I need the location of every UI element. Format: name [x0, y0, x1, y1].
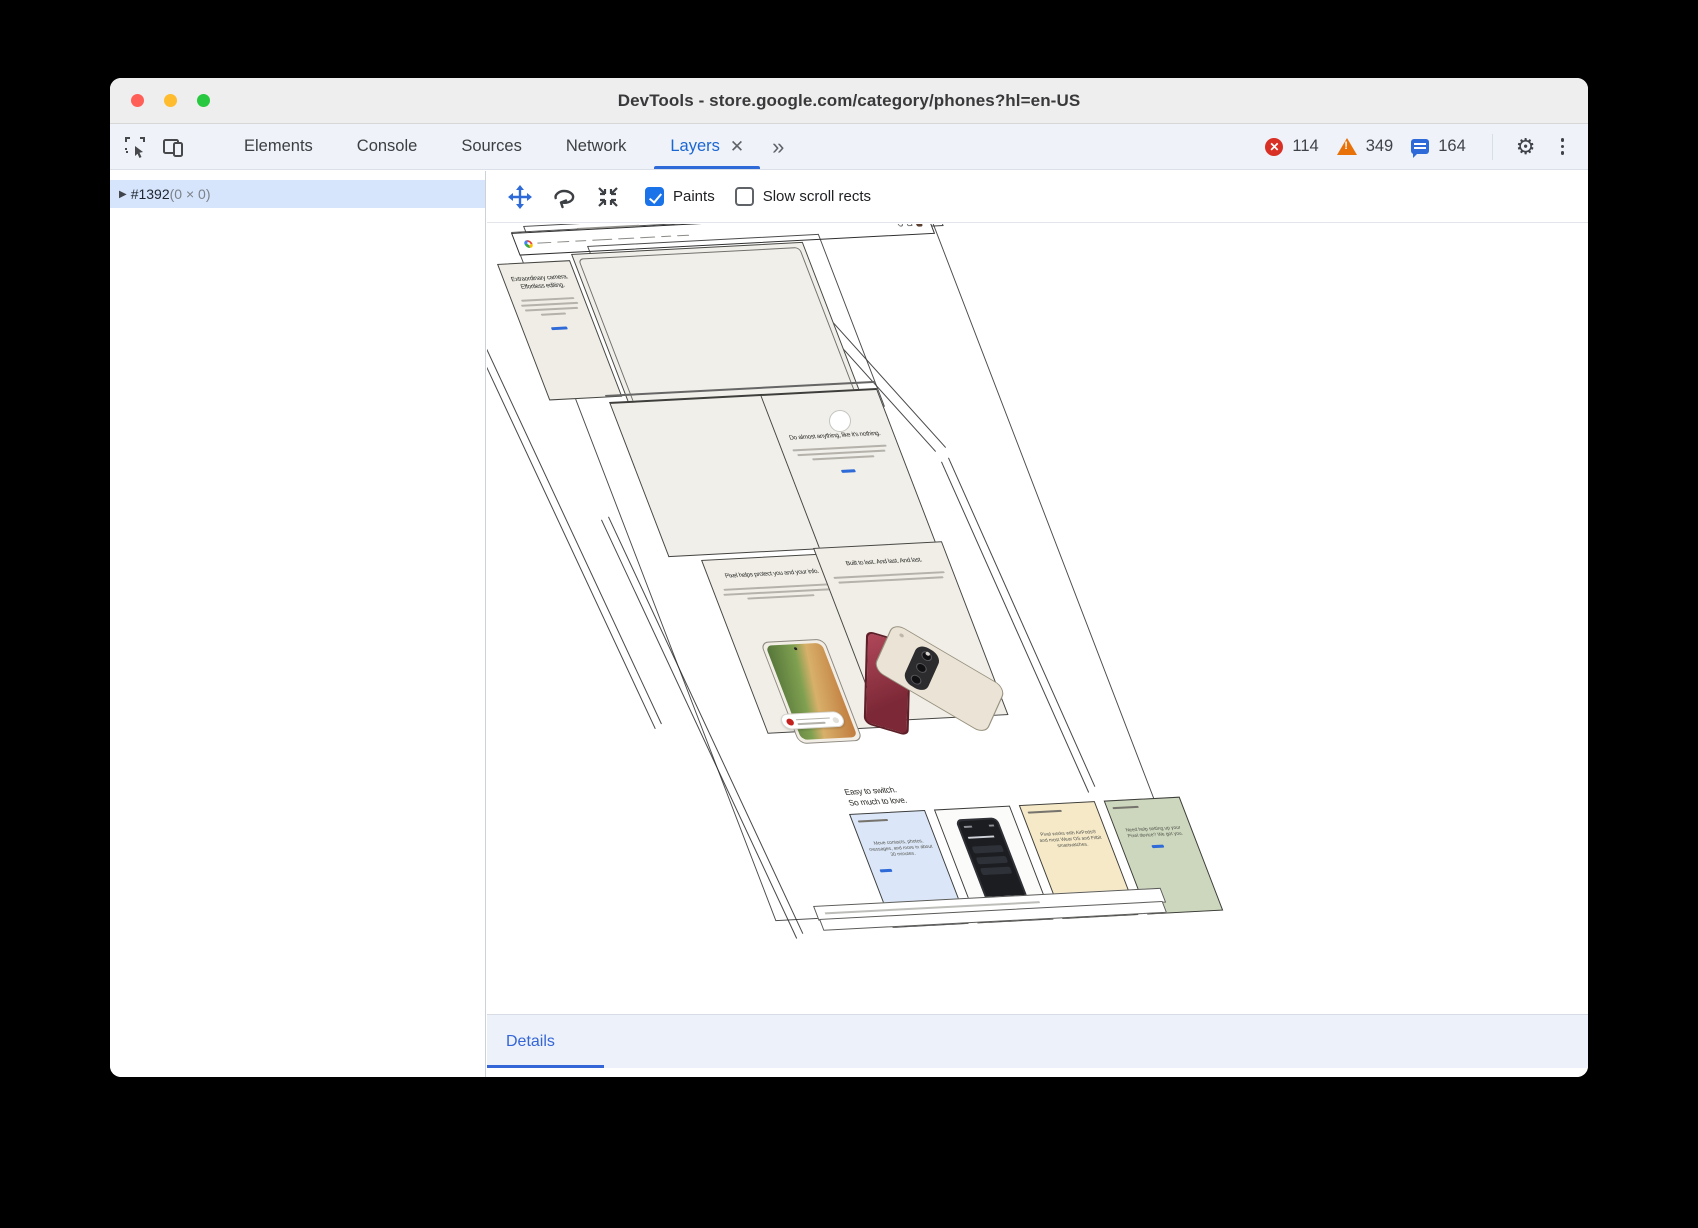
built-heading: Built to last. And last. And last. [832, 556, 936, 569]
more-tabs-icon[interactable]: » [766, 134, 788, 160]
layers-toolbar: Paints Slow scroll rects [487, 171, 1588, 223]
slow-scroll-checkbox[interactable] [735, 187, 754, 206]
window-title: DevTools - store.google.com/category/pho… [618, 91, 1081, 111]
details-tab[interactable]: Details [487, 1015, 604, 1068]
toolbar-divider [1492, 134, 1493, 160]
layers-3d-canvas[interactable]: Extraordinary camera. Effortless editing… [487, 224, 1588, 1014]
slow-scroll-label: Slow scroll rects [763, 188, 871, 205]
traffic-lights [131, 78, 210, 123]
layer-node-size: (0 × 0) [170, 186, 211, 202]
title-bar: DevTools - store.google.com/category/pho… [110, 78, 1588, 124]
issues-count[interactable]: 164 [1438, 137, 1466, 156]
panel-tabs: Elements Console Sources Network Layers … [222, 124, 788, 169]
tab-network[interactable]: Network [544, 124, 649, 169]
screenshot-stage: DevTools - store.google.com/category/pho… [0, 0, 1698, 1228]
pan-mode-icon[interactable] [503, 180, 537, 214]
error-count[interactable]: 114 [1292, 137, 1318, 156]
close-window-button[interactable] [131, 94, 144, 107]
close-layers-tab-icon[interactable]: ✕ [730, 138, 744, 155]
layers-panel: Paints Slow scroll rects [487, 171, 1588, 1077]
rotate-mode-icon[interactable] [547, 180, 581, 214]
protect-heading: Pixel helps protect you and your info. [715, 567, 830, 581]
settings-gear-icon[interactable]: ⚙ [1510, 134, 1542, 160]
protect-phone-image [760, 639, 863, 744]
devtools-body: ▶ #1392 (0 × 0) [110, 171, 1588, 1077]
tab-console[interactable]: Console [335, 124, 440, 169]
inspect-element-icon[interactable] [122, 134, 148, 160]
details-bar: Details [487, 1014, 1588, 1068]
paints-checkbox[interactable] [645, 187, 664, 206]
reset-view-icon[interactable] [591, 180, 625, 214]
tab-elements[interactable]: Elements [222, 124, 335, 169]
devtools-window: DevTools - store.google.com/category/pho… [110, 78, 1588, 1077]
minimize-window-button[interactable] [164, 94, 177, 107]
google-logo [523, 239, 534, 247]
error-icon[interactable]: ✕ [1265, 138, 1283, 156]
hero-heading: Extraordinary camera. Effortless editing… [508, 273, 575, 292]
notification-toast [779, 711, 847, 730]
layer-tree-row[interactable]: ▶ #1392 (0 × 0) [110, 180, 485, 208]
layer-tree-sidebar: ▶ #1392 (0 × 0) [110, 171, 486, 1077]
hero-link [550, 326, 567, 329]
expand-triangle-icon[interactable]: ▶ [119, 189, 127, 200]
paints-checkbox-row[interactable]: Paints [645, 187, 715, 206]
layer-node-id: #1392 [131, 186, 170, 202]
devtools-toolbar: Elements Console Sources Network Layers … [110, 124, 1588, 170]
details-tab-underline [487, 1065, 604, 1068]
anything-link [841, 469, 856, 472]
avatar [914, 224, 923, 227]
device-toolbar-icon[interactable] [160, 134, 186, 160]
tab-layers[interactable]: Layers ✕ [648, 124, 766, 169]
warning-icon[interactable] [1337, 138, 1357, 155]
cart-icon [906, 224, 913, 226]
slow-scroll-checkbox-row[interactable]: Slow scroll rects [735, 187, 871, 206]
floating-dot-layer [829, 410, 851, 432]
active-tab-underline [654, 166, 760, 169]
status-counters: ✕ 114 349 164 ⚙ [1265, 134, 1574, 160]
anything-heading: Do almost anything, like it's nothing. [782, 430, 889, 443]
tab-sources[interactable]: Sources [439, 124, 544, 169]
nav-icons [896, 224, 923, 228]
issues-icon[interactable] [1411, 139, 1429, 154]
more-options-kebab-icon[interactable] [1551, 138, 1575, 155]
zoom-window-button[interactable] [197, 94, 210, 107]
warning-count[interactable]: 349 [1366, 137, 1394, 156]
search-icon [897, 224, 904, 227]
paints-label: Paints [673, 188, 715, 205]
